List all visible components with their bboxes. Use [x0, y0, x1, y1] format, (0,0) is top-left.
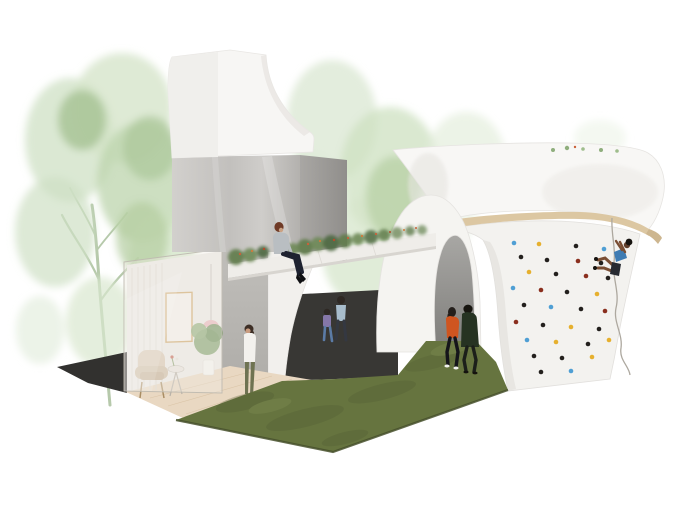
climbing-hold — [597, 327, 602, 332]
scene-canvas — [0, 0, 693, 520]
climbing-hold — [603, 309, 608, 314]
climbing-hold — [590, 355, 595, 360]
climbing-hold — [595, 292, 600, 297]
climbing-hold — [565, 290, 570, 295]
climbing-hold — [560, 356, 565, 361]
climbing-hold — [569, 325, 574, 330]
climbing-hold — [554, 272, 559, 277]
climbing-hold — [532, 354, 537, 359]
climbing-hold — [606, 276, 611, 281]
climbing-hold — [586, 342, 591, 347]
climbing-hold — [579, 307, 584, 312]
climbing-hold — [576, 259, 581, 264]
climbing-hold — [607, 338, 612, 343]
canopy-shading — [542, 164, 658, 220]
climbing-hold — [539, 288, 544, 293]
climbing-hold — [511, 286, 516, 291]
canopy-tan-curl — [646, 229, 662, 244]
climbing-hold — [584, 274, 589, 279]
architectural-rendering — [0, 0, 693, 520]
tower-left-facet — [168, 52, 218, 158]
climbing-hold — [545, 258, 550, 263]
climbing-hold — [522, 303, 527, 308]
climbing-hold — [554, 340, 559, 345]
climbing-hold — [537, 242, 542, 247]
climbing-hold — [541, 323, 546, 328]
climbing-hold — [539, 370, 544, 375]
climbing-hold — [599, 261, 604, 266]
climbing-hold — [525, 338, 530, 343]
climbing-hold — [574, 244, 579, 249]
climbing-hold — [602, 247, 607, 252]
climbing-hold — [519, 255, 524, 260]
climbing-hold — [549, 305, 554, 310]
climbing-hold — [527, 270, 532, 275]
climbing-hold — [512, 241, 517, 246]
climbing-hold — [514, 320, 519, 325]
climbing-hold — [569, 369, 574, 374]
